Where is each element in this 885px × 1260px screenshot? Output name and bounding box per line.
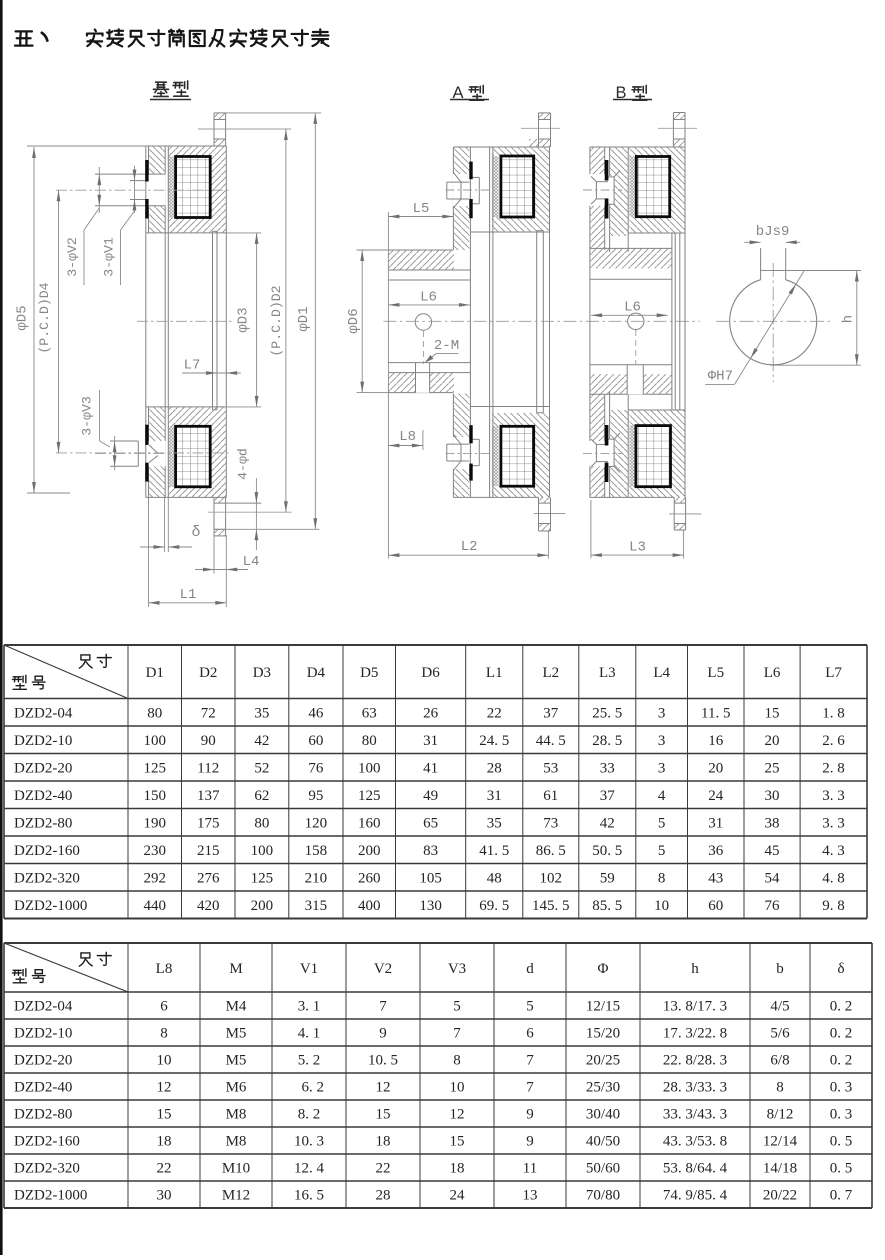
svg-text:DZD2-10: DZD2-10 (14, 733, 72, 749)
svg-text:41: 41 (423, 760, 438, 776)
svg-text:137: 137 (197, 788, 220, 804)
svg-text:28. 5: 28. 5 (592, 733, 622, 749)
svg-text:31: 31 (487, 788, 502, 804)
svg-text:80: 80 (147, 705, 162, 721)
svg-text:76: 76 (765, 898, 781, 914)
svg-text:4. 1: 4. 1 (298, 1026, 321, 1042)
svg-text:17. 3/22. 8: 17. 3/22. 8 (663, 1026, 727, 1042)
svg-text:276: 276 (197, 870, 220, 886)
svg-text:10. 3: 10. 3 (294, 1134, 324, 1150)
svg-text:10. 5: 10. 5 (368, 1053, 398, 1069)
svg-text:φD1: φD1 (296, 306, 312, 331)
svg-text:18: 18 (376, 1134, 391, 1150)
svg-text:L5: L5 (413, 201, 430, 217)
svg-text:260: 260 (358, 870, 381, 886)
svg-text:L1: L1 (180, 587, 197, 603)
svg-text:0. 5: 0. 5 (830, 1134, 853, 1150)
svg-text:76: 76 (308, 760, 324, 776)
svg-text:30/40: 30/40 (586, 1107, 620, 1123)
svg-text:15: 15 (450, 1134, 465, 1150)
svg-text:DZD2-80: DZD2-80 (14, 1107, 72, 1123)
svg-text:L4: L4 (653, 665, 670, 681)
svg-text:37: 37 (543, 705, 559, 721)
svg-text:L3: L3 (629, 540, 646, 556)
svg-text:V3: V3 (448, 961, 466, 977)
svg-text:h: h (841, 315, 857, 323)
svg-text:175: 175 (197, 815, 220, 831)
svg-text:95: 95 (308, 788, 323, 804)
svg-text:215: 215 (197, 843, 220, 859)
svg-text:L3: L3 (599, 665, 616, 681)
svg-text:74. 9/85. 4: 74. 9/85. 4 (663, 1188, 728, 1204)
svg-text:DZD2-80: DZD2-80 (14, 815, 72, 831)
svg-text:200: 200 (358, 843, 381, 859)
svg-text:DZD2-1000: DZD2-1000 (14, 898, 87, 914)
svg-text:8/12: 8/12 (767, 1107, 794, 1123)
svg-text:16: 16 (708, 733, 724, 749)
svg-text:DZD2-20: DZD2-20 (14, 760, 72, 776)
svg-text:69. 5: 69. 5 (479, 898, 509, 914)
svg-text:0. 2: 0. 2 (830, 999, 853, 1015)
svg-text:2. 6: 2. 6 (822, 733, 845, 749)
svg-text:90: 90 (201, 733, 216, 749)
svg-text:35: 35 (487, 815, 502, 831)
svg-text:13. 8/17. 3: 13. 8/17. 3 (663, 999, 727, 1015)
svg-text:2. 8: 2. 8 (822, 760, 845, 776)
svg-text:D5: D5 (360, 665, 378, 681)
svg-text:L5: L5 (707, 665, 724, 681)
svg-text:8: 8 (160, 1026, 168, 1042)
svg-text:60: 60 (708, 898, 723, 914)
svg-text:48: 48 (487, 870, 502, 886)
svg-text:D1: D1 (146, 665, 164, 681)
svg-text:20: 20 (708, 760, 723, 776)
svg-text:5: 5 (658, 843, 666, 859)
svg-text:15/20: 15/20 (586, 1026, 620, 1042)
svg-text:420: 420 (197, 898, 220, 914)
svg-text:16. 5: 16. 5 (294, 1188, 324, 1204)
svg-text:DZD2-04: DZD2-04 (14, 705, 73, 721)
svg-text:7: 7 (379, 999, 387, 1015)
svg-text:12/15: 12/15 (586, 999, 620, 1015)
svg-text:8: 8 (658, 870, 666, 886)
svg-text:125: 125 (251, 870, 274, 886)
svg-text:6. 2: 6. 2 (294, 1080, 324, 1096)
svg-text:80: 80 (254, 815, 269, 831)
svg-text:(P.C.D)D4: (P.C.D)D4 (37, 282, 52, 353)
svg-text:3-φV1: 3-φV1 (102, 237, 117, 277)
svg-text:24: 24 (450, 1188, 466, 1204)
svg-text:0. 2: 0. 2 (830, 1026, 853, 1042)
svg-text:400: 400 (358, 898, 381, 914)
svg-text:15: 15 (376, 1107, 391, 1123)
svg-text:3: 3 (658, 760, 666, 776)
svg-text:20: 20 (765, 733, 780, 749)
svg-text:31: 31 (423, 733, 438, 749)
svg-text:50. 5: 50. 5 (592, 843, 622, 859)
svg-text:150: 150 (144, 788, 167, 804)
svg-text:25. 5: 25. 5 (592, 705, 622, 721)
svg-text:φD3: φD3 (236, 307, 252, 332)
svg-text:12: 12 (376, 1080, 391, 1096)
svg-text:DZD2-160: DZD2-160 (14, 843, 80, 859)
svg-text:M8: M8 (226, 1107, 247, 1123)
svg-text:15: 15 (765, 705, 780, 721)
svg-text:6: 6 (160, 999, 168, 1015)
svg-text:24: 24 (708, 788, 724, 804)
svg-text:52: 52 (254, 760, 269, 776)
svg-text:ΦH7: ΦH7 (708, 369, 733, 385)
svg-text:(P.C.D)D2: (P.C.D)D2 (269, 285, 284, 356)
svg-text:DZD2-1000: DZD2-1000 (14, 1188, 87, 1204)
svg-text:DZD2-40: DZD2-40 (14, 1080, 72, 1096)
svg-text:59: 59 (600, 870, 615, 886)
svg-text:43: 43 (708, 870, 723, 886)
svg-text:L8: L8 (399, 429, 416, 445)
svg-text:8. 2: 8. 2 (298, 1107, 321, 1123)
svg-text:DZD2-320: DZD2-320 (14, 870, 80, 886)
svg-text:0. 5: 0. 5 (830, 1161, 853, 1177)
svg-text:5/6: 5/6 (770, 1026, 790, 1042)
svg-text:125: 125 (358, 788, 381, 804)
svg-text:9: 9 (526, 1107, 534, 1123)
svg-text:42: 42 (254, 733, 269, 749)
svg-text:15: 15 (157, 1107, 172, 1123)
svg-text:100: 100 (144, 733, 167, 749)
svg-text:44. 5: 44. 5 (536, 733, 566, 749)
svg-text:20/25: 20/25 (586, 1053, 620, 1069)
svg-text:δ: δ (191, 524, 200, 541)
svg-text:DZD2-20: DZD2-20 (14, 1053, 72, 1069)
svg-text:11: 11 (523, 1161, 537, 1177)
svg-text:200: 200 (251, 898, 274, 914)
svg-text:22. 8/28. 3: 22. 8/28. 3 (663, 1053, 727, 1069)
svg-text:D6: D6 (421, 665, 440, 681)
svg-text:4/5: 4/5 (770, 999, 789, 1015)
svg-text:26: 26 (423, 705, 439, 721)
svg-text:10: 10 (157, 1053, 172, 1069)
svg-text:DZD2-320: DZD2-320 (14, 1161, 80, 1177)
svg-text:53. 8/64. 4: 53. 8/64. 4 (663, 1161, 728, 1177)
svg-text:12: 12 (450, 1107, 465, 1123)
svg-text:M5: M5 (226, 1026, 247, 1042)
svg-text:b: b (776, 961, 784, 977)
svg-text:315: 315 (305, 898, 328, 914)
svg-text:5: 5 (526, 999, 534, 1015)
svg-text:5: 5 (453, 999, 461, 1015)
svg-text:4-φd: 4-φd (236, 448, 251, 480)
svg-text:43. 3/53. 8: 43. 3/53. 8 (663, 1134, 727, 1150)
svg-text:3: 3 (658, 705, 666, 721)
svg-text:40/50: 40/50 (586, 1134, 620, 1150)
svg-text:100: 100 (251, 843, 274, 859)
svg-text:V1: V1 (300, 961, 318, 977)
svg-text:3-φV3: 3-φV3 (80, 396, 95, 436)
svg-text:65: 65 (423, 815, 438, 831)
svg-text:63: 63 (362, 705, 377, 721)
svg-text:24. 5: 24. 5 (479, 733, 509, 749)
svg-text:125: 125 (144, 760, 167, 776)
svg-text:33. 3/43. 3: 33. 3/43. 3 (663, 1107, 727, 1123)
svg-text:D3: D3 (253, 665, 271, 681)
svg-text:22: 22 (157, 1161, 172, 1177)
svg-text:DZD2-40: DZD2-40 (14, 788, 72, 804)
svg-text:L1: L1 (486, 665, 503, 681)
svg-text:Φ: Φ (598, 961, 609, 977)
svg-text:L6: L6 (420, 289, 437, 305)
svg-text:6/8: 6/8 (770, 1053, 789, 1069)
svg-text:9: 9 (379, 1026, 387, 1042)
svg-text:L7: L7 (825, 665, 842, 681)
svg-text:3-φV2: 3-φV2 (65, 237, 80, 277)
svg-text:61: 61 (543, 788, 558, 804)
svg-text:28: 28 (487, 760, 502, 776)
svg-text:4. 8: 4. 8 (822, 870, 845, 886)
svg-text:0. 3: 0. 3 (830, 1107, 853, 1123)
svg-text:49: 49 (423, 788, 438, 804)
svg-text:DZD2-10: DZD2-10 (14, 1026, 72, 1042)
svg-text:DZD2-160: DZD2-160 (14, 1134, 80, 1150)
svg-text:30: 30 (765, 788, 780, 804)
svg-text:4: 4 (658, 788, 666, 804)
svg-text:120: 120 (305, 815, 328, 831)
svg-text:δ: δ (837, 961, 844, 977)
svg-text:30: 30 (157, 1188, 172, 1204)
svg-text:4. 3: 4. 3 (822, 843, 845, 859)
svg-text:31: 31 (708, 815, 723, 831)
svg-text:60: 60 (308, 733, 323, 749)
svg-text:M12: M12 (222, 1188, 250, 1204)
svg-text:53: 53 (543, 760, 558, 776)
svg-text:33: 33 (600, 760, 615, 776)
svg-text:0. 7: 0. 7 (830, 1188, 853, 1204)
svg-text:L6: L6 (624, 299, 641, 315)
svg-text:D4: D4 (307, 665, 326, 681)
svg-text:83: 83 (423, 843, 438, 859)
svg-text:210: 210 (305, 870, 328, 886)
svg-text:145. 5: 145. 5 (532, 898, 570, 914)
svg-text:3. 1: 3. 1 (298, 999, 321, 1015)
svg-text:L2: L2 (461, 539, 478, 555)
svg-text:9. 8: 9. 8 (822, 898, 845, 914)
svg-text:3: 3 (658, 733, 666, 749)
svg-text:50/60: 50/60 (586, 1161, 620, 1177)
svg-text:10: 10 (654, 898, 669, 914)
svg-text:V2: V2 (374, 961, 392, 977)
svg-text:100: 100 (358, 760, 381, 776)
svg-text:DZD2-04: DZD2-04 (14, 999, 73, 1015)
svg-text:φD6: φD6 (346, 308, 362, 333)
svg-text:160: 160 (358, 815, 381, 831)
svg-text:85. 5: 85. 5 (592, 898, 622, 914)
svg-text:L2: L2 (542, 665, 559, 681)
svg-text:86. 5: 86. 5 (536, 843, 566, 859)
svg-text:28: 28 (376, 1188, 391, 1204)
svg-text:3. 3: 3. 3 (822, 815, 845, 831)
svg-text:7: 7 (526, 1080, 534, 1096)
svg-text:5. 2: 5. 2 (298, 1053, 321, 1069)
svg-text:3. 3: 3. 3 (822, 788, 845, 804)
svg-text:54: 54 (765, 870, 781, 886)
svg-text:28. 3/33. 3: 28. 3/33. 3 (663, 1080, 727, 1096)
svg-text:12. 4: 12. 4 (294, 1161, 325, 1177)
svg-text:0. 3: 0. 3 (830, 1080, 853, 1096)
svg-text:36: 36 (708, 843, 724, 859)
svg-text:9: 9 (526, 1134, 534, 1150)
svg-text:18: 18 (157, 1134, 172, 1150)
svg-text:130: 130 (419, 898, 442, 914)
svg-text:L4: L4 (243, 554, 260, 570)
svg-text:230: 230 (144, 843, 167, 859)
svg-text:M6: M6 (226, 1080, 247, 1096)
svg-text:42: 42 (600, 815, 615, 831)
svg-text:70/80: 70/80 (586, 1188, 620, 1204)
svg-text:0. 2: 0. 2 (830, 1053, 853, 1069)
svg-text:41. 5: 41. 5 (479, 843, 509, 859)
svg-text:10: 10 (450, 1080, 465, 1096)
svg-text:M10: M10 (222, 1161, 250, 1177)
svg-text:102: 102 (540, 870, 563, 886)
svg-text:h: h (691, 961, 699, 977)
svg-text:158: 158 (305, 843, 328, 859)
svg-text:2-M: 2-M (434, 338, 459, 354)
svg-text:11. 5: 11. 5 (701, 705, 730, 721)
svg-text:M4: M4 (226, 999, 247, 1015)
svg-text:D2: D2 (199, 665, 217, 681)
svg-text:7: 7 (526, 1053, 534, 1069)
svg-text:bJs9: bJs9 (756, 224, 790, 240)
svg-text:18: 18 (450, 1161, 465, 1177)
svg-text:190: 190 (144, 815, 167, 831)
svg-text:25: 25 (765, 760, 780, 776)
svg-text:L8: L8 (156, 961, 173, 977)
svg-text:φD5: φD5 (15, 305, 31, 330)
svg-text:8: 8 (776, 1080, 784, 1096)
svg-text:1. 8: 1. 8 (822, 705, 845, 721)
svg-text:112: 112 (197, 760, 219, 776)
svg-text:6: 6 (526, 1026, 534, 1042)
svg-text:38: 38 (765, 815, 780, 831)
svg-text:13: 13 (523, 1188, 538, 1204)
svg-text:62: 62 (254, 788, 269, 804)
svg-text:292: 292 (144, 870, 167, 886)
svg-text:73: 73 (543, 815, 558, 831)
svg-text:105: 105 (419, 870, 442, 886)
svg-text:8: 8 (453, 1053, 461, 1069)
svg-text:22: 22 (376, 1161, 391, 1177)
svg-text:12: 12 (157, 1080, 172, 1096)
svg-text:20/22: 20/22 (763, 1188, 797, 1204)
svg-text:L6: L6 (764, 665, 781, 681)
svg-text:22: 22 (487, 705, 502, 721)
svg-text:M5: M5 (226, 1053, 247, 1069)
svg-text:440: 440 (144, 898, 167, 914)
svg-text:72: 72 (201, 705, 216, 721)
svg-text:7: 7 (453, 1026, 461, 1042)
svg-text:14/18: 14/18 (763, 1161, 797, 1177)
svg-text:M8: M8 (226, 1134, 247, 1150)
svg-text:37: 37 (600, 788, 616, 804)
svg-text:80: 80 (362, 733, 377, 749)
svg-text:d: d (526, 961, 534, 977)
svg-text:46: 46 (308, 705, 324, 721)
svg-text:45: 45 (765, 843, 780, 859)
svg-text:M: M (229, 961, 242, 977)
svg-text:25/30: 25/30 (586, 1080, 620, 1096)
svg-text:35: 35 (254, 705, 269, 721)
svg-text:12/14: 12/14 (763, 1134, 798, 1150)
svg-text:L7: L7 (184, 358, 201, 374)
svg-text:5: 5 (658, 815, 666, 831)
